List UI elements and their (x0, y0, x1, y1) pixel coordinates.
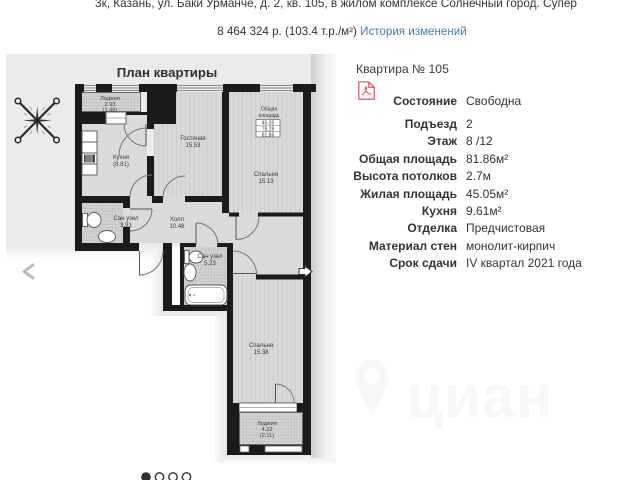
svg-text:(8.81): (8.81) (113, 162, 129, 168)
svg-text:Общая: Общая (261, 107, 278, 113)
svg-text:(2.11): (2.11) (260, 433, 274, 439)
svg-text:81.86: 81.86 (262, 132, 275, 138)
svg-text:Гостиная: Гостиная (180, 136, 205, 142)
svg-text:15.53: 15.53 (185, 143, 201, 149)
svg-text:(1.46): (1.46) (103, 108, 118, 114)
svg-text:Спальня: Спальня (249, 343, 273, 349)
svg-text:15.13: 15.13 (258, 179, 274, 185)
svg-text:3.91: 3.91 (120, 223, 132, 229)
svg-text:15.38: 15.38 (253, 350, 269, 356)
svg-text:5.23: 5.23 (204, 261, 216, 267)
svg-text:План квартиры: План квартиры (117, 65, 217, 80)
svg-text:Холл: Холл (170, 217, 185, 223)
svg-text:площадь: площадь (259, 113, 280, 119)
svg-text:Сан узел: Сан узел (113, 216, 139, 222)
svg-text:10.48: 10.48 (169, 224, 185, 230)
svg-text:циан: циан (406, 363, 553, 430)
svg-text:Кухня: Кухня (113, 155, 129, 161)
svg-text:Спальня: Спальня (254, 172, 278, 178)
svg-text:Сан узел: Сан узел (197, 254, 223, 260)
